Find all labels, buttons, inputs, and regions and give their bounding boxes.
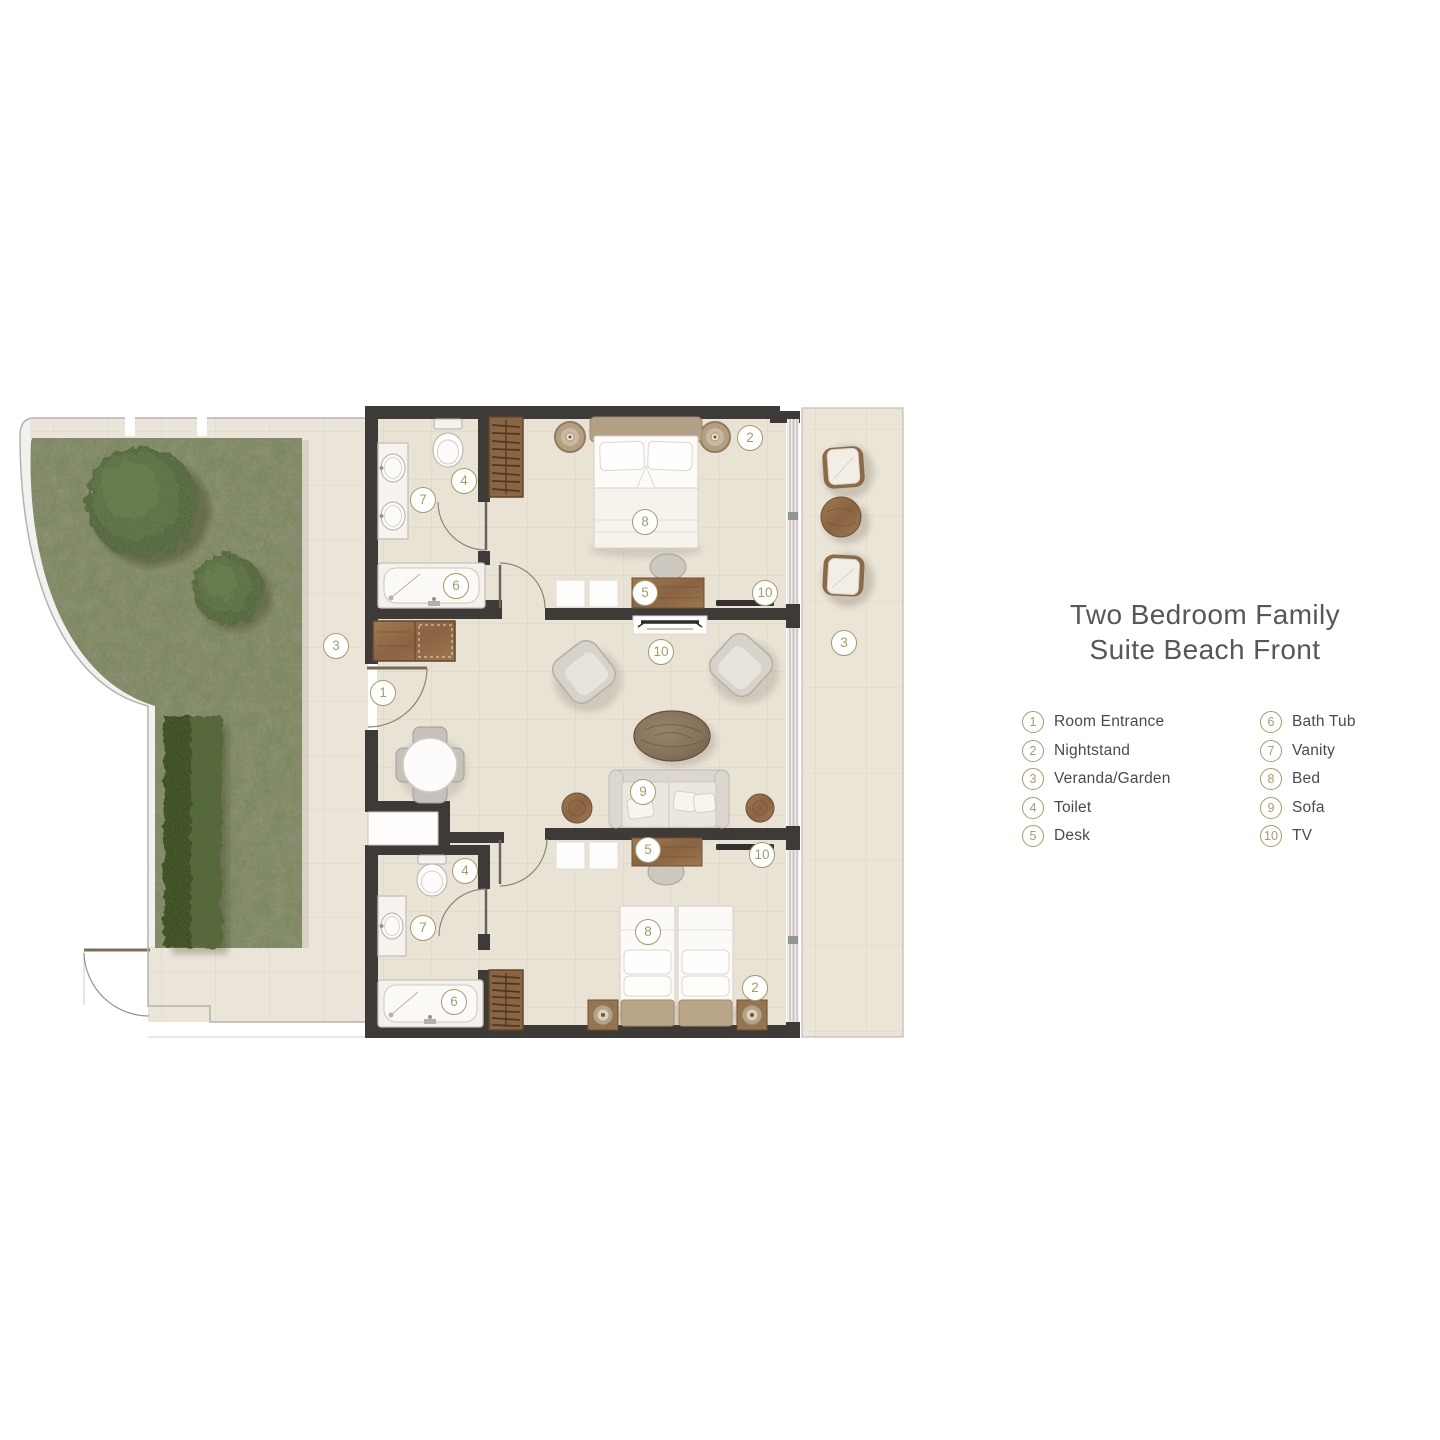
legend-label: Desk (1054, 827, 1090, 845)
vanity-bottom (378, 896, 406, 956)
legend-number-badge: 1 (1022, 711, 1044, 733)
plan-marker-bed-top: 8 (632, 509, 658, 535)
legend-item-bed: 8 Bed (1260, 768, 1356, 790)
legend-number-badge: 2 (1022, 740, 1044, 762)
legend-number-badge: 4 (1022, 797, 1044, 819)
nightstand-rug (555, 422, 585, 452)
entry-closet (368, 812, 438, 845)
legend-item-tv: 10 TV (1260, 825, 1356, 847)
legend-item-toilet: 4 Toilet (1022, 797, 1171, 819)
balcony-chair (822, 446, 866, 490)
plan-marker-desk-top: 5 (632, 580, 658, 606)
legend-column-right: 6 Bath Tub 7 Vanity 8 Bed 9 Sofa 10 TV (1260, 711, 1356, 854)
tv-console (633, 616, 707, 634)
legend-label: Sofa (1292, 799, 1325, 817)
balcony (802, 408, 903, 1037)
floor-plan-drawing (0, 0, 1440, 1440)
plan-marker-toilet-top: 4 (451, 468, 477, 494)
coffee-table (634, 711, 710, 761)
balcony-table (821, 497, 861, 537)
bath-tub-bottom (378, 980, 483, 1027)
plan-marker-bathtub-bottom: 6 (441, 989, 467, 1015)
twin-bed (678, 906, 733, 1026)
floor-mat (589, 842, 618, 869)
garden-tree-large (86, 446, 198, 558)
wardrobe-bottom (489, 970, 523, 1030)
plan-marker-tv-living: 10 (648, 639, 674, 665)
plan-marker-vanity-bottom: 7 (410, 915, 436, 941)
legend-item-room-entrance: 1 Room Entrance (1022, 711, 1171, 733)
legend-number-badge: 3 (1022, 768, 1044, 790)
legend-number-badge: 5 (1022, 825, 1044, 847)
floor-mat (556, 842, 585, 869)
legend-number-badge: 8 (1260, 768, 1282, 790)
plan-marker-desk-bottom: 5 (635, 837, 661, 863)
floor-mat (589, 580, 618, 607)
plan-marker-toilet-bottom: 4 (452, 858, 478, 884)
legend-label: Toilet (1054, 799, 1091, 817)
legend-item-desk: 5 Desk (1022, 825, 1171, 847)
garden-path-tiles (30, 419, 302, 438)
legend-number-badge: 6 (1260, 711, 1282, 733)
legend-label: Bath Tub (1292, 713, 1356, 731)
plan-marker-veranda-garden: 3 (323, 633, 349, 659)
legend-item-vanity: 7 Vanity (1260, 740, 1356, 762)
garden-hedge (164, 716, 222, 948)
toilet-bottom (417, 855, 447, 896)
side-table (562, 793, 592, 823)
legend-label: TV (1292, 827, 1312, 845)
legend-number-badge: 10 (1260, 825, 1282, 847)
legend-label: Room Entrance (1054, 713, 1164, 731)
legend-label: Vanity (1292, 742, 1335, 760)
legend-label: Bed (1292, 770, 1320, 788)
page-title: Two Bedroom Family Suite Beach Front (1040, 597, 1370, 667)
legend-label: Veranda/Garden (1054, 770, 1171, 788)
king-bed (590, 417, 702, 558)
nightstand (588, 1000, 618, 1030)
legend-number-badge: 9 (1260, 797, 1282, 819)
plan-marker-room-entrance: 1 (370, 680, 396, 706)
page-title-line2: Suite Beach Front (1040, 632, 1370, 667)
floor-mat (556, 580, 585, 607)
plan-marker-nightstand-bottom: 2 (742, 975, 768, 1001)
plan-marker-nightstand-top: 2 (737, 425, 763, 451)
veranda-garden (20, 412, 368, 1037)
sofa (607, 770, 731, 839)
minibar-cabinet (373, 621, 455, 661)
page-title-line1: Two Bedroom Family (1040, 597, 1370, 632)
floor-plan-page: 1 2 8 5 10 4 7 6 3 3 10 9 5 10 4 7 6 8 2… (0, 0, 1440, 1440)
legend-item-sofa: 9 Sofa (1260, 797, 1356, 819)
plan-marker-bed-bottom: 8 (635, 919, 661, 945)
vanity-top (378, 443, 408, 539)
sliding-glass-doors (786, 419, 800, 1022)
plan-marker-vanity-top: 7 (410, 487, 436, 513)
nightstand-rug (700, 422, 730, 452)
legend-number-badge: 7 (1260, 740, 1282, 762)
plan-marker-sofa: 9 (630, 779, 656, 805)
toilet-top (433, 419, 463, 467)
side-table (746, 794, 774, 822)
legend-item-bath-tub: 6 Bath Tub (1260, 711, 1356, 733)
plan-marker-tv-top: 10 (752, 580, 778, 606)
plan-marker-bathtub-top: 6 (443, 573, 469, 599)
plan-marker-veranda-balcony: 3 (831, 630, 857, 656)
balcony-chair (822, 554, 865, 597)
plan-marker-tv-bottom: 10 (749, 842, 775, 868)
wardrobe-top (489, 417, 523, 497)
legend-label: Nightstand (1054, 742, 1130, 760)
nightstand (737, 1000, 767, 1030)
garden-tree-small (193, 554, 263, 624)
legend-item-veranda-garden: 3 Veranda/Garden (1022, 768, 1171, 790)
legend-column-left: 1 Room Entrance 2 Nightstand 3 Veranda/G… (1022, 711, 1171, 854)
legend-item-nightstand: 2 Nightstand (1022, 740, 1171, 762)
